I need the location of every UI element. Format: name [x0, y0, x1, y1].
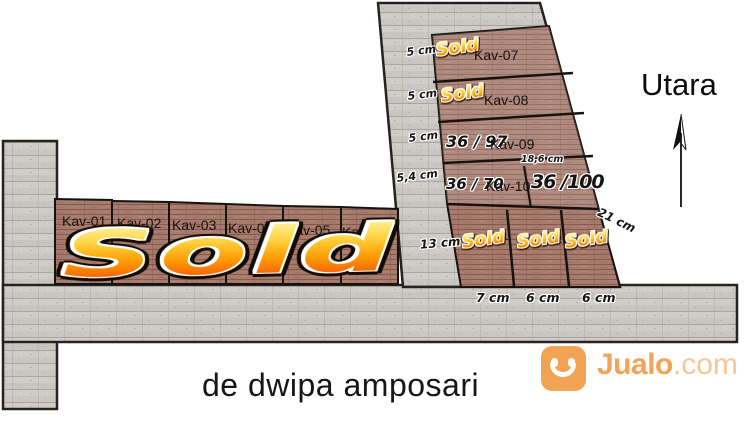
plot-label-kav-08: Kav-08	[484, 93, 528, 107]
jualo-logo-icon	[541, 346, 586, 391]
dim-kav-08: 5 cm	[407, 87, 438, 102]
road-horizontal	[3, 285, 737, 342]
plot-label-kav-07: Kav-07	[474, 48, 518, 62]
brand-tld: .com	[673, 348, 738, 381]
page-title: de dwipa amposari	[202, 369, 479, 401]
north-label: Utara	[641, 69, 717, 100]
brand-name: Jualo	[597, 348, 673, 381]
dim-6cm-b: 6 cm	[582, 292, 615, 305]
road-vertical	[3, 141, 57, 409]
site-plan-image: Kav-01 Kav-02 Kav-03 Kav-04 Kav-05 Kav-0…	[0, 0, 750, 429]
dim-18-6cm: 18,6 cm	[521, 155, 563, 165]
dim-6cm-a: 6 cm	[526, 292, 559, 305]
north-arrow-icon	[673, 114, 686, 207]
dim-13cm: 13 cm	[420, 235, 461, 250]
logo-smile	[550, 363, 576, 377]
size-36-100: 36 /100	[531, 173, 604, 192]
plot-label-kav-09: Kav-09	[490, 137, 534, 151]
dim-7cm: 7 cm	[476, 292, 509, 305]
dim-kav-09: 5 cm	[408, 129, 439, 144]
jualo-watermark: Jualo.com	[541, 346, 738, 391]
sold-overlay-left-block: Sold	[61, 217, 397, 288]
plot-label-kav-10: Kav-10	[486, 179, 530, 193]
dim-kav-07: 5 cm	[406, 43, 437, 58]
jualo-logo-text: Jualo.com	[597, 348, 738, 382]
